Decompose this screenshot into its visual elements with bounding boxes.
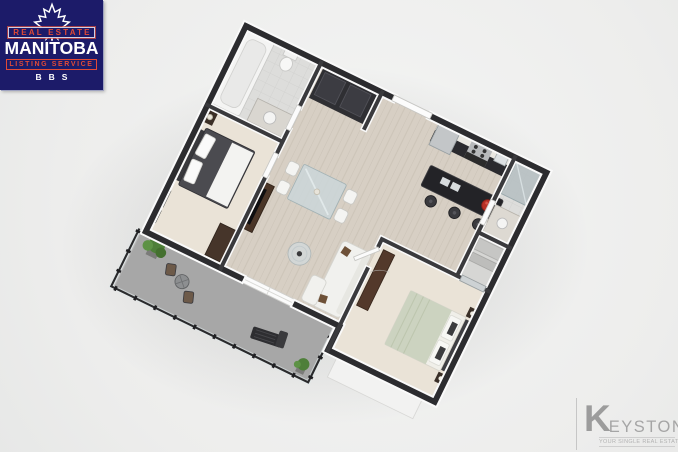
mrea-line-real-estate: REAL ESTATE xyxy=(8,27,95,38)
mrea-line-bbs: BBS xyxy=(0,72,103,82)
keystone-rest: EYSTONE xyxy=(609,420,678,435)
mrea-logo: REAL ESTATE MANITOBA LISTING SERVICE BBS xyxy=(0,0,103,90)
keystone-initial: K xyxy=(584,402,610,436)
mrea-line-manitoba: MANITOBA xyxy=(0,38,103,59)
keystone-tagline: YOUR SINGLE REAL ESTATE RESOURCE xyxy=(599,437,675,447)
mrea-line-listing-service: LISTING SERVICE xyxy=(6,59,97,70)
page-background: REAL ESTATE MANITOBA LISTING SERVICE BBS… xyxy=(0,0,678,452)
keystone-brand: K EYSTONE xyxy=(584,400,674,436)
keystone-logo: K EYSTONE YOUR SINGLE REAL ESTATE RESOUR… xyxy=(576,398,674,450)
bistro-chair xyxy=(183,291,194,303)
bistro-chair xyxy=(165,263,176,276)
